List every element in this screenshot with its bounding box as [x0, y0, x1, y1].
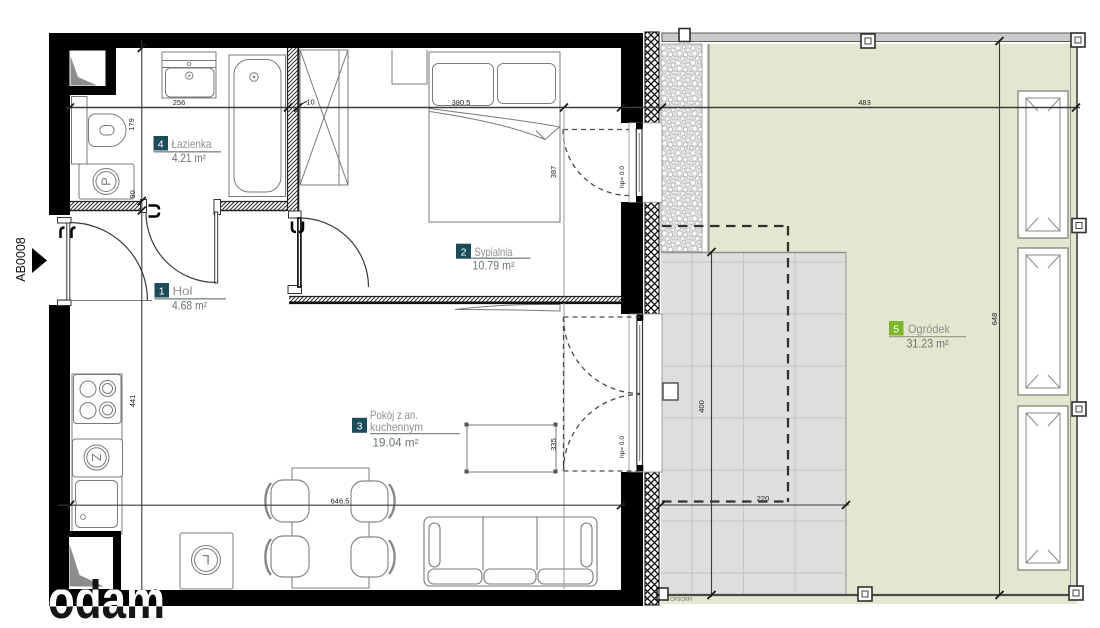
svg-text:335: 335 — [549, 438, 558, 451]
svg-text:648: 648 — [990, 313, 999, 326]
svg-text:P: P — [99, 177, 114, 186]
svg-text:L: L — [202, 552, 210, 568]
svg-text:441: 441 — [128, 395, 137, 408]
svg-text:387: 387 — [549, 166, 558, 179]
svg-text:Ogródek: Ogródek — [908, 322, 951, 336]
svg-text:220: 220 — [757, 494, 770, 503]
svg-text:380.5: 380.5 — [452, 98, 471, 107]
svg-text:hp= 0.0: hp= 0.0 — [619, 436, 626, 458]
svg-text:3: 3 — [357, 421, 363, 433]
svg-text:90: 90 — [128, 190, 137, 198]
svg-text:hp= 0.0: hp= 0.0 — [619, 166, 626, 188]
svg-text:5: 5 — [893, 324, 899, 336]
svg-text:179: 179 — [127, 118, 136, 131]
svg-text:AB0008: AB0008 — [14, 237, 28, 282]
svg-text:Z: Z — [89, 454, 104, 462]
svg-text:Łazienka: Łazienka — [172, 137, 212, 151]
svg-text:10.79 m²: 10.79 m² — [473, 261, 515, 273]
svg-text:1: 1 — [159, 286, 165, 298]
svg-text:31.23 m²: 31.23 m² — [907, 339, 949, 351]
svg-text:Sypialnia: Sypialnia — [475, 245, 513, 259]
svg-text:400: 400 — [697, 400, 706, 413]
svg-text:kuchennym: kuchennym — [370, 420, 423, 434]
svg-text:256: 256 — [173, 98, 186, 107]
svg-text:19.04 m²: 19.04 m² — [373, 438, 419, 450]
svg-text:10: 10 — [306, 98, 314, 107]
svg-text:4.68 m²: 4.68 m² — [172, 301, 207, 313]
svg-text:646.5: 646.5 — [331, 497, 350, 506]
svg-text:2: 2 — [461, 247, 467, 259]
svg-text:Hol: Hol — [173, 284, 193, 298]
svg-text:483: 483 — [858, 98, 871, 107]
svg-text:4.21 m²: 4.21 m² — [172, 153, 206, 165]
svg-text:CPSCRPt: CPSCRPt — [670, 597, 693, 603]
svg-text:4: 4 — [158, 139, 164, 151]
